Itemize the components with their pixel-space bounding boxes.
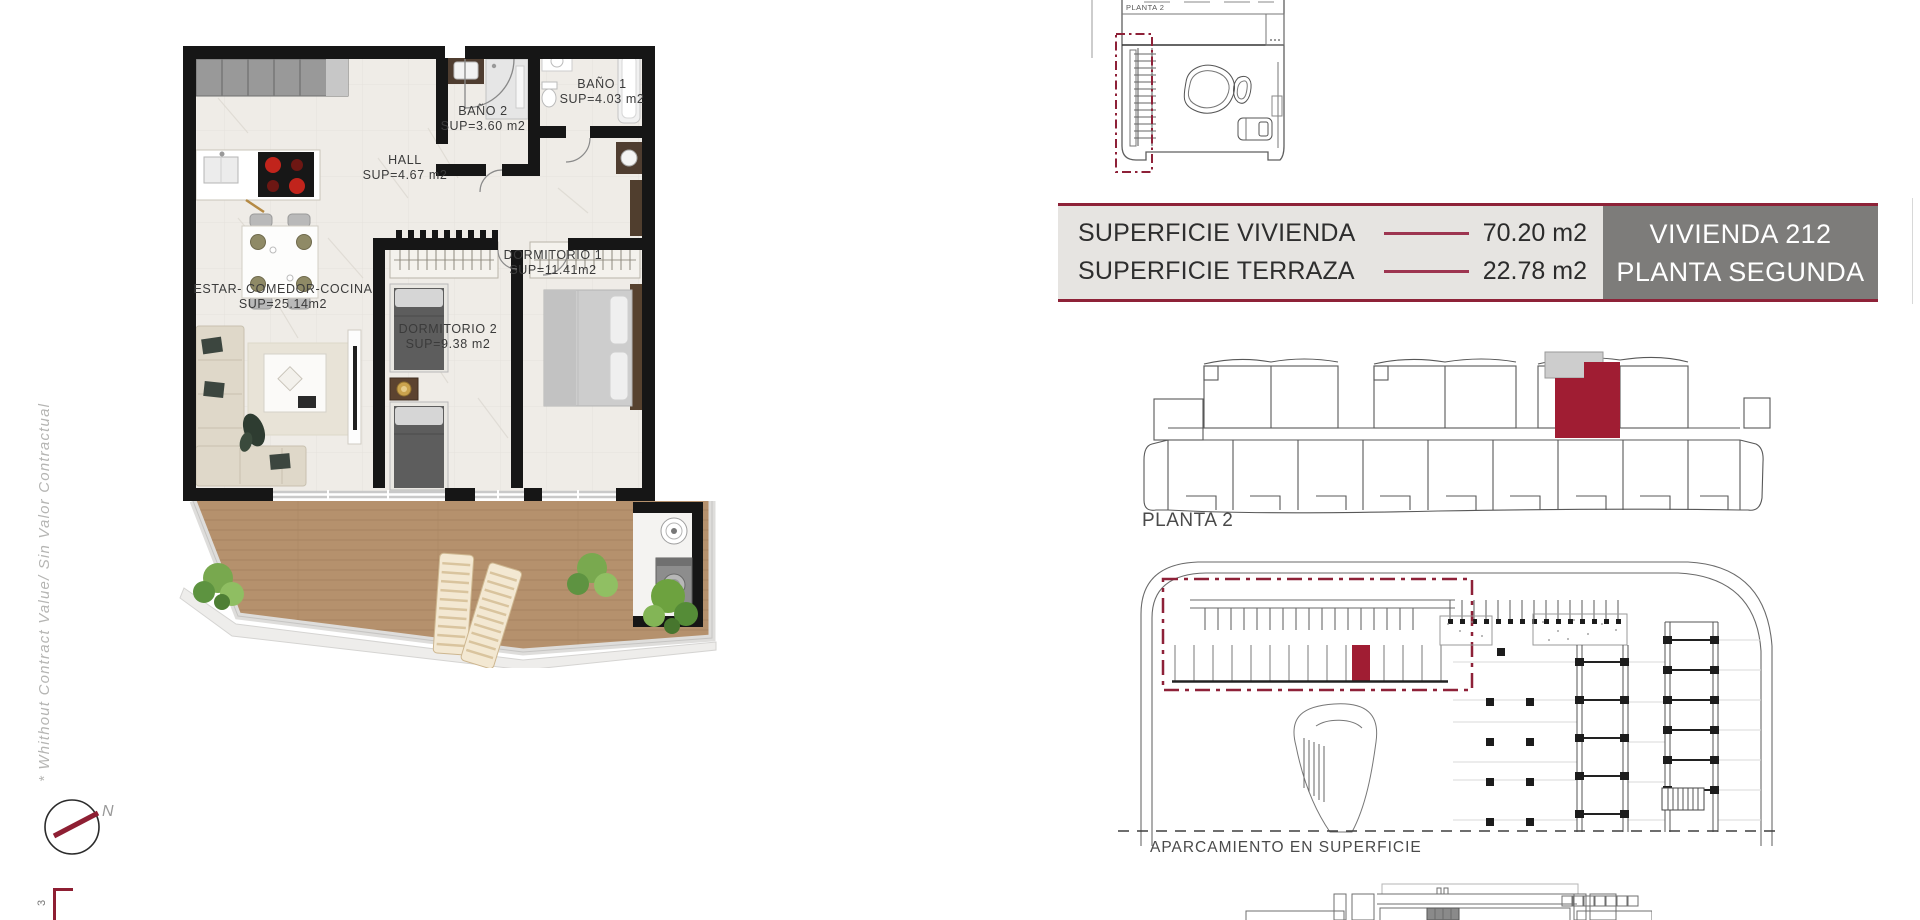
leader-line (1384, 270, 1469, 274)
floor-key-label: PLANTA 2 (1142, 510, 1233, 531)
room-label-hall: HALLSUP=4.67 m2 (363, 153, 448, 183)
surface-value: 22.78 m2 (1469, 257, 1603, 286)
room-label-bano2: BAÑO 2SUP=3.60 m2 (441, 104, 526, 134)
unit-floor: PLANTA SEGUNDA (1616, 253, 1864, 291)
surface-label: SUPERFICIE TERRAZA (1078, 257, 1378, 286)
surface-table: SUPERFICIE VIVIENDA 70.20 m2 SUPERFICIE … (1058, 206, 1603, 299)
planta2-key-plan: PLANTA 2 (1138, 342, 1778, 537)
sheet-edge-line (1912, 198, 1913, 304)
parking-label: APARCAMIENTO EN SUPERFICIE (1150, 839, 1422, 856)
highlighted-parking-stall (1352, 645, 1370, 682)
scale-figure: 3 (35, 880, 95, 920)
highlighted-parking-zone (1163, 579, 1472, 690)
roof-terrace-key-plan: PLANTA 2 (1086, 0, 1301, 190)
unit-id-panel: VIVIENDA 212 PLANTA SEGUNDA (1603, 206, 1878, 299)
surface-row-vivienda: SUPERFICIE VIVIENDA 70.20 m2 (1078, 219, 1603, 248)
disclaimer-text: * Whithout Contract Value/ Sin Valor Con… (36, 362, 53, 782)
elevation-fragment (1222, 882, 1652, 920)
surface-label: SUPERFICIE VIVIENDA (1078, 219, 1378, 248)
room-label-dorm2: DORMITORIO 2SUP=9.38 m2 (399, 322, 498, 352)
north-label: N (102, 803, 114, 820)
room-label-estar: ESTAR- COMEDOR-COCINASUP=25.14m2 (193, 282, 372, 312)
scale-number: 3 (36, 900, 48, 906)
room-label-dorm1: DORMITORIO 1SUP=11.41m2 (504, 248, 603, 278)
north-compass: N (30, 790, 125, 870)
leader-line (1384, 232, 1469, 236)
parking-plan: APARCAMIENTO EN SUPERFICIE (1108, 556, 1792, 856)
surface-row-terraza: SUPERFICIE TERRAZA 22.78 m2 (1078, 257, 1603, 286)
room-label-bano1: BAÑO 1SUP=4.03 m2 (560, 77, 645, 107)
plan-sheet: ESTAR- COMEDOR-COCINASUP=25.14m2 HALLSUP… (0, 0, 1920, 920)
roof-plan-label: PLANTA 2 (1126, 3, 1164, 12)
surface-value: 70.20 m2 (1469, 219, 1603, 248)
surface-summary-banner: SUPERFICIE VIVIENDA 70.20 m2 SUPERFICIE … (1058, 203, 1878, 302)
unit-name: VIVIENDA 212 (1650, 215, 1832, 253)
